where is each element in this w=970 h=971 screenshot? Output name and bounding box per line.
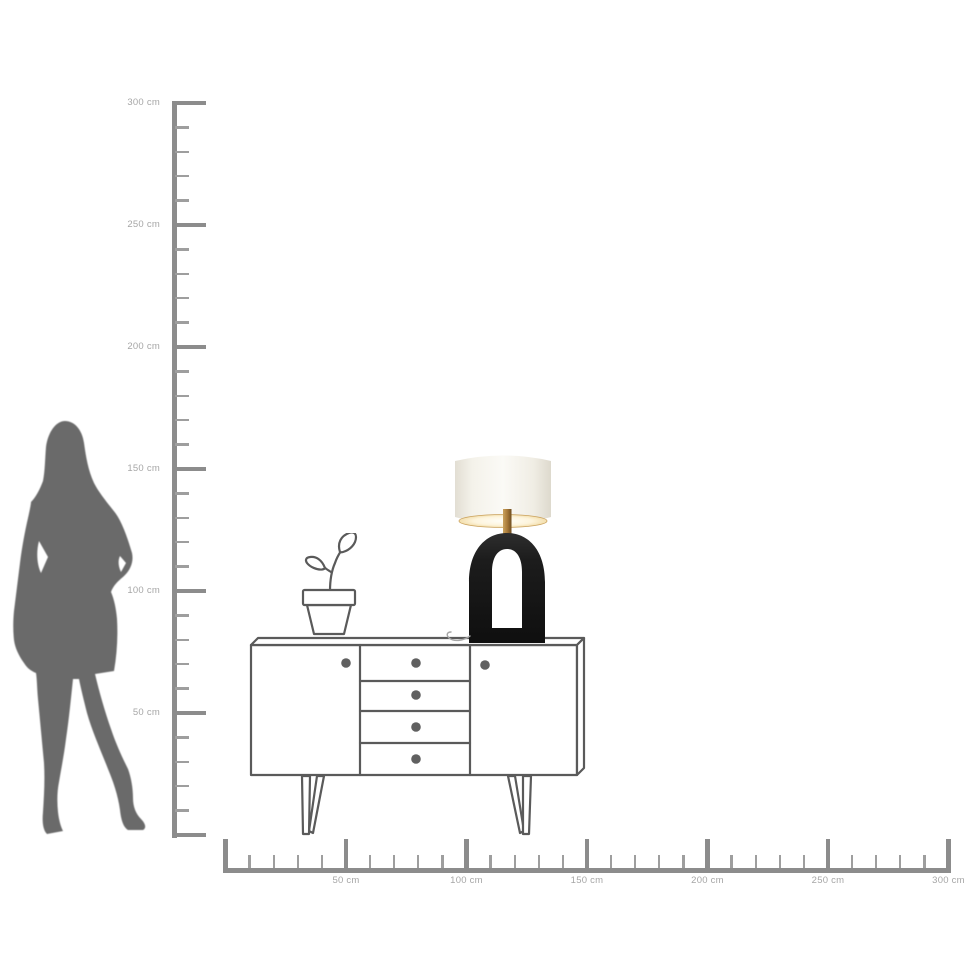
ruler-tick <box>175 639 189 641</box>
sideboard-drawing <box>240 628 590 840</box>
ruler-tick <box>175 248 189 250</box>
lamp-cord <box>447 632 470 640</box>
ruler-label: 250 cm <box>802 875 854 887</box>
door-knob <box>341 658 351 668</box>
plant-stem <box>330 551 341 591</box>
ruler-tick <box>369 855 371 868</box>
ruler-tick <box>755 855 757 868</box>
product-dimensions-diagram: 300 cm250 cm200 cm150 cm100 cm50 cm 50 c… <box>0 0 970 971</box>
ruler-label: 200 cm <box>108 341 160 353</box>
ruler-tick <box>297 855 299 868</box>
ruler-tick <box>175 345 206 349</box>
ruler-label: 250 cm <box>108 219 160 231</box>
ruler-tick <box>634 855 636 868</box>
ruler-label: 100 cm <box>108 585 160 597</box>
ruler-tick <box>175 126 189 128</box>
ruler-label: 50 cm <box>108 707 160 719</box>
ruler-tick <box>175 151 189 153</box>
potted-plant-drawing <box>295 533 365 639</box>
ruler-tick <box>803 855 805 868</box>
sideboard-legs <box>302 776 531 834</box>
ruler-tick <box>175 761 189 763</box>
ruler-tick <box>248 855 250 868</box>
ruler-tick <box>175 833 206 837</box>
ruler-tick <box>826 839 830 868</box>
ruler-tick <box>175 809 189 811</box>
ruler-tick <box>175 199 189 201</box>
woman-silhouette <box>0 414 160 838</box>
ruler-tick <box>175 517 189 519</box>
ruler-tick <box>489 855 491 868</box>
ruler-tick <box>175 565 189 567</box>
horizontal-ruler-line <box>223 868 951 873</box>
ruler-tick <box>730 855 732 868</box>
ruler-tick <box>779 855 781 868</box>
ruler-tick <box>875 855 877 868</box>
ruler-label: 150 cm <box>108 463 160 475</box>
drawer-knob <box>411 722 421 732</box>
ruler-tick <box>562 855 564 868</box>
ruler-label: 150 cm <box>561 875 613 887</box>
sideboard-side <box>577 638 584 775</box>
ruler-tick <box>321 855 323 868</box>
ruler-tick <box>175 419 189 421</box>
drawer-knob <box>411 658 421 668</box>
ruler-tick <box>393 855 395 868</box>
drawer-knob <box>411 690 421 700</box>
ruler-tick <box>464 839 468 868</box>
ruler-tick <box>175 297 189 299</box>
ruler-tick <box>175 541 189 543</box>
ruler-tick <box>175 273 189 275</box>
ruler-tick <box>899 855 901 868</box>
ruler-tick <box>175 736 189 738</box>
ruler-tick <box>344 839 348 868</box>
ruler-label: 50 cm <box>320 875 372 887</box>
ruler-label: 200 cm <box>682 875 734 887</box>
sideboard-leg <box>309 776 324 833</box>
ruler-tick <box>175 467 206 471</box>
ruler-tick <box>514 855 516 868</box>
ruler-tick <box>175 687 189 689</box>
ruler-tick <box>923 855 925 868</box>
ruler-tick <box>175 370 189 372</box>
plant-leaf <box>306 557 325 570</box>
ruler-tick <box>175 614 189 616</box>
ruler-tick <box>441 855 443 868</box>
lamp-base <box>469 533 545 643</box>
drawer-knob <box>411 754 421 764</box>
plant-pot-rim <box>303 590 355 605</box>
ruler-tick <box>175 321 189 323</box>
sideboard-leg <box>302 776 310 834</box>
ruler-tick <box>705 839 709 868</box>
ruler-tick <box>175 711 206 715</box>
ruler-tick <box>946 839 950 868</box>
ruler-tick <box>175 785 189 787</box>
plant-leaf <box>339 533 356 552</box>
lamp-stem <box>503 509 512 537</box>
ruler-tick <box>610 855 612 868</box>
table-lamp-product <box>444 444 560 650</box>
plant-pot-body <box>307 605 351 634</box>
ruler-tick <box>175 101 206 105</box>
ruler-label: 300 cm <box>923 875 970 887</box>
ruler-label: 300 cm <box>108 97 160 109</box>
ruler-tick <box>538 855 540 868</box>
ruler-tick <box>223 839 227 868</box>
ruler-tick <box>175 175 189 177</box>
ruler-tick <box>175 492 189 494</box>
ruler-tick <box>175 223 206 227</box>
sideboard-leg <box>508 776 524 833</box>
ruler-tick <box>175 395 189 397</box>
ruler-tick <box>273 855 275 868</box>
ruler-tick <box>175 443 189 445</box>
ruler-tick <box>682 855 684 868</box>
door-knob <box>480 660 490 670</box>
ruler-label: 100 cm <box>441 875 493 887</box>
ruler-tick <box>851 855 853 868</box>
ruler-tick <box>417 855 419 868</box>
ruler-tick <box>658 855 660 868</box>
ruler-tick <box>175 589 206 593</box>
ruler-tick <box>585 839 589 868</box>
sideboard-leg <box>523 776 531 834</box>
ruler-tick <box>175 663 189 665</box>
